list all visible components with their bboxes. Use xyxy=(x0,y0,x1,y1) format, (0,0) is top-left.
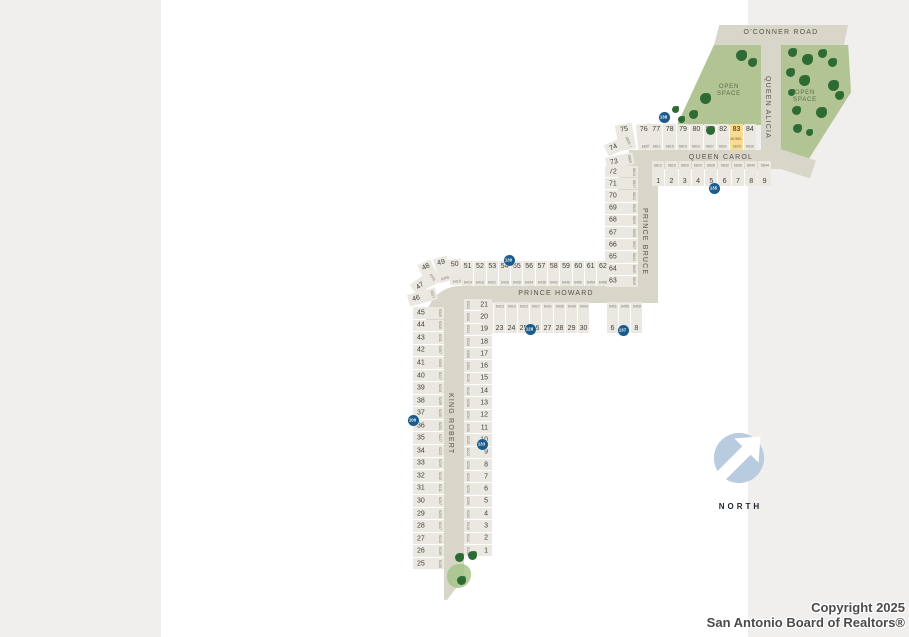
lot-address: 6435 xyxy=(556,305,564,307)
lot-address: 6227 xyxy=(439,433,441,443)
tree-icon xyxy=(828,80,839,91)
lot-address: 6821 xyxy=(633,191,635,201)
road-queen-alicia-label: QUEEN ALICIA xyxy=(764,58,771,158)
lot-8: 68408 xyxy=(745,161,757,186)
lot-29: 643929 xyxy=(566,302,577,333)
lot-address: 6306 xyxy=(467,349,469,359)
lot-number: 77 xyxy=(652,126,660,133)
lot-82: 826831 xyxy=(717,124,729,150)
lot-address: 6239 xyxy=(439,396,441,406)
lot-57: 576438 xyxy=(536,261,547,286)
lot-address: 6819 xyxy=(679,145,687,147)
lot-83: 83MODEL6835 xyxy=(730,124,742,150)
lot-number: 14 xyxy=(480,387,488,394)
lot-number: 53 xyxy=(488,263,496,270)
lot-address: 6214 xyxy=(467,472,469,482)
lot-address: 6815 xyxy=(666,145,674,147)
lot-number: 29 xyxy=(568,325,576,332)
lot-number: 70 xyxy=(609,192,617,199)
lot-number: 27 xyxy=(544,325,552,332)
lot-address: 6230 xyxy=(467,423,469,433)
lot-number: 64 xyxy=(609,266,617,273)
lot-address: 6135 xyxy=(439,559,441,569)
lot-address: 6414 xyxy=(464,281,472,283)
lot-marker-badge: 138 xyxy=(659,112,670,123)
lot-address: 6824 xyxy=(694,164,702,166)
lot-address: 6823 xyxy=(692,145,700,147)
lot-address: 6841 xyxy=(633,252,635,262)
tree-icon xyxy=(788,89,795,96)
lot-76: 766807 xyxy=(636,123,653,150)
lot-number: 8 xyxy=(749,178,753,185)
lot-6: 68326 xyxy=(718,161,730,186)
lot-number: 82 xyxy=(719,126,727,133)
north-arrow-icon xyxy=(706,425,772,491)
lot-58: 586442 xyxy=(548,261,559,286)
lot-79: 796819 xyxy=(677,124,689,150)
lot-number: 2 xyxy=(669,178,673,185)
lot-address: 6231 xyxy=(439,421,441,431)
copyright-line1: Copyright 2025 xyxy=(605,600,905,615)
lot-number: 6 xyxy=(723,178,727,185)
lot-63: 636849 xyxy=(605,276,638,287)
lot-address: 6147 xyxy=(439,521,441,531)
lot-number: 8 xyxy=(635,325,639,332)
lot-address: 6315 xyxy=(439,320,441,330)
road-oconner-label: O'CONNER ROAD xyxy=(721,29,841,36)
lot-address: 6828 xyxy=(707,164,715,166)
lot-number: 46 xyxy=(411,294,420,303)
lot-number: 3 xyxy=(484,522,488,529)
lot-number: 52 xyxy=(476,263,484,270)
lot-address: 6459 xyxy=(633,305,641,307)
tree-icon xyxy=(818,49,827,58)
lot-address: 6835 xyxy=(733,145,741,147)
lot-1: 68121 xyxy=(652,161,664,186)
lot-number: 65 xyxy=(609,253,617,260)
lot-40: 406247 xyxy=(413,370,444,382)
lot-address: 6202 xyxy=(467,509,469,519)
lot-number: 61 xyxy=(587,263,595,270)
lot-number: 69 xyxy=(609,205,617,212)
lot-marker-badge: 133 xyxy=(477,439,488,450)
lot-61: 616454 xyxy=(585,261,596,286)
lot-29: 296203 xyxy=(413,508,444,520)
lot-number: 59 xyxy=(562,263,570,270)
lot-address: 6311 xyxy=(439,333,441,343)
lot-address: 6322 xyxy=(467,300,469,310)
lot-address: 6455 xyxy=(621,305,629,307)
lot-marker-badge: 135 xyxy=(709,183,720,194)
road-queen-carol-label: QUEEN CAROL xyxy=(666,154,776,161)
lot-address: 6247 xyxy=(439,371,441,381)
lot-27: 276143 xyxy=(413,533,444,545)
lot-address: 6246 xyxy=(467,373,469,383)
lot-marker-badge: 130 xyxy=(504,255,515,266)
lot-number: 40 xyxy=(417,372,425,379)
lot-11: 116230 xyxy=(464,422,492,433)
lot-59: 596446 xyxy=(560,261,571,286)
lot-address: 6827 xyxy=(706,145,714,147)
lot-address: 6139 xyxy=(439,546,441,556)
lot-5: 56206 xyxy=(464,496,492,507)
lot-80: 806823 xyxy=(690,124,702,150)
lot-number: 30 xyxy=(417,497,425,504)
lot-marker-badge: 100 xyxy=(408,415,419,426)
lot-3: 68203 xyxy=(679,161,691,186)
lot-number: 26 xyxy=(417,548,425,555)
open-space-west-label: OPEN SPACE xyxy=(713,84,745,98)
lot-33: 336219 xyxy=(413,458,444,470)
lot-number: 20 xyxy=(480,313,488,320)
lot-16: 166302 xyxy=(464,360,492,371)
lot-address: 6426 xyxy=(501,281,509,283)
tree-icon xyxy=(736,50,747,61)
lot-number: 16 xyxy=(480,363,488,370)
lot-address: 6849 xyxy=(633,276,635,286)
lot-14: 146242 xyxy=(464,385,492,396)
lot-number: 42 xyxy=(417,347,425,354)
tree-icon xyxy=(792,106,801,115)
lot-number: 38 xyxy=(417,397,425,404)
lot-address: 6419 xyxy=(508,305,516,307)
copyright-notice: Copyright 2025 San Antonio Board of Real… xyxy=(605,600,905,630)
lot-19: 196314 xyxy=(464,324,492,335)
lot-number: 37 xyxy=(417,410,425,417)
lot-address: 6423 xyxy=(520,305,528,307)
lot-number: 32 xyxy=(417,472,425,479)
lot-41: 416303 xyxy=(413,357,444,369)
lot-address: 6211 xyxy=(439,483,441,493)
lot-address: 6833 xyxy=(633,228,635,238)
lot-number: 44 xyxy=(417,322,425,329)
tree-icon xyxy=(802,54,813,65)
lot-71: 716817 xyxy=(605,178,638,189)
lot-39: 396243 xyxy=(413,382,444,394)
lot-23: 641523 xyxy=(494,302,505,333)
lot-address: 6807 xyxy=(641,145,649,148)
lot-address: 6812 xyxy=(654,164,662,166)
lot-address: 6310 xyxy=(467,337,469,347)
lot-number: 7 xyxy=(484,473,488,480)
lot-38: 386239 xyxy=(413,395,444,407)
lot-13: 136238 xyxy=(464,397,492,408)
lot-address: 6142 xyxy=(467,533,469,543)
lot-30: 306207 xyxy=(413,495,444,507)
lot-66: 666837 xyxy=(605,239,638,250)
lot-address: 6302 xyxy=(467,361,469,371)
lot-address: 6450 xyxy=(574,281,582,283)
tree-icon xyxy=(672,106,679,113)
lot-number: 83 xyxy=(733,126,741,133)
lot-number: 35 xyxy=(417,435,425,442)
lot-address: 6434 xyxy=(525,281,533,283)
lot-number: 1 xyxy=(656,178,660,185)
lot-number: 8 xyxy=(484,461,488,468)
lot-number: 34 xyxy=(417,447,425,454)
lot-26: 266139 xyxy=(413,545,444,557)
lot-number: 12 xyxy=(480,412,488,419)
lot-number: 5 xyxy=(484,498,488,505)
lot-address: 6839 xyxy=(746,145,754,147)
lot-address: 6307 xyxy=(439,345,441,355)
lot-address: 6442 xyxy=(550,281,558,283)
lot-69: 696825 xyxy=(605,203,638,214)
lot-address: 6805 xyxy=(625,136,631,146)
lot-number: 28 xyxy=(556,325,564,332)
lot-number: 55 xyxy=(513,263,521,270)
lot-group-qc_north: 77681178681579681980682381682782683183MO… xyxy=(650,124,756,150)
lot-28: 286147 xyxy=(413,520,444,532)
lot-65: 656841 xyxy=(605,251,638,262)
lot-address: 6331 xyxy=(429,272,437,281)
lot-marker-badge: 128 xyxy=(525,324,536,335)
left-gutter xyxy=(0,0,161,637)
lot-number: 39 xyxy=(417,385,425,392)
lot-address: 6243 xyxy=(439,383,441,393)
lot-number: 60 xyxy=(574,263,582,270)
lot-number: 9 xyxy=(763,178,767,185)
tree-icon xyxy=(689,110,698,119)
lot-group-ph_north: 5164145264185364225464265564305664345764… xyxy=(462,261,609,286)
lot-45: 456319 xyxy=(413,307,444,319)
lot-address: 6218 xyxy=(467,460,469,470)
lot-address: 6206 xyxy=(467,496,469,506)
lot-address: 6431 xyxy=(544,305,552,307)
lot-30: 644330 xyxy=(578,302,589,333)
lot-number: 71 xyxy=(609,180,617,187)
lot-24: 641924 xyxy=(506,302,517,333)
lot-number: 76 xyxy=(640,126,648,134)
lot-number: 41 xyxy=(417,359,425,366)
lot-number: 75 xyxy=(620,125,629,133)
lot-address: 6207 xyxy=(439,496,441,506)
lot-number: 74 xyxy=(608,143,618,153)
plat-map: OPEN SPACE OPEN SPACE O'CONNER ROAD QUEE… xyxy=(161,0,748,637)
lot-address: 6820 xyxy=(681,164,689,166)
lot-address: 6410 xyxy=(452,280,460,283)
lot-address: 6446 xyxy=(562,281,570,283)
lot-number: 28 xyxy=(417,523,425,530)
lot-8: 86218 xyxy=(464,459,492,470)
tree-icon xyxy=(748,58,757,67)
lot-28: 643528 xyxy=(554,302,565,333)
road-prince-howard-label: PRINCE HOWARD xyxy=(491,290,621,297)
tree-icon xyxy=(786,68,795,77)
lot-78: 786815 xyxy=(663,124,675,150)
lot-3: 36146 xyxy=(464,520,492,531)
lot-number: 58 xyxy=(550,263,558,270)
tree-icon xyxy=(828,58,837,67)
tree-icon xyxy=(788,48,797,57)
lot-address: 6825 xyxy=(633,203,635,213)
lot-17: 176306 xyxy=(464,348,492,359)
lot-number: 17 xyxy=(480,350,488,357)
lot-number: 13 xyxy=(480,400,488,407)
lot-number: 57 xyxy=(538,263,546,270)
lot-address: 6837 xyxy=(633,240,635,250)
lot-15: 156246 xyxy=(464,373,492,384)
lot-number: 4 xyxy=(696,178,700,185)
lot-number: 24 xyxy=(508,325,516,332)
lot-address: 6210 xyxy=(467,484,469,494)
lot-number: 30 xyxy=(580,325,588,332)
tree-icon xyxy=(468,551,477,560)
lot-address: 6422 xyxy=(488,281,496,283)
lot-address: 6427 xyxy=(532,305,540,307)
lot-address: 6813 xyxy=(633,167,635,177)
lot-9: 68449 xyxy=(758,161,770,186)
lot-group-kr_east: 2163222063181963141863101763061663021562… xyxy=(464,299,492,556)
lot-42: 426307 xyxy=(413,345,444,357)
lot-7: 76214 xyxy=(464,471,492,482)
lot-number: 49 xyxy=(437,258,446,267)
lot-21: 216322 xyxy=(464,299,492,310)
lot-20: 206318 xyxy=(464,311,492,322)
lot-number: 62 xyxy=(599,263,607,270)
lot-number: 78 xyxy=(666,126,674,133)
tree-icon xyxy=(806,129,813,136)
lot-number: 63 xyxy=(609,278,617,285)
lot-address: 6454 xyxy=(587,281,595,283)
lot-53: 536422 xyxy=(487,261,498,286)
lot-address: 6845 xyxy=(633,264,635,274)
lot-address: 6811 xyxy=(652,145,660,147)
lot-number: 18 xyxy=(480,338,488,345)
lot-address: 6430 xyxy=(513,281,521,283)
lot-84: 846839 xyxy=(744,124,756,150)
lot-address: 6443 xyxy=(580,305,588,307)
lot-44: 446315 xyxy=(413,320,444,332)
model-tag: MODEL xyxy=(731,138,742,140)
lot-4: 46202 xyxy=(464,508,492,519)
lot-number: 68 xyxy=(609,217,617,224)
lot-address: 6203 xyxy=(439,509,441,519)
lot-number: 29 xyxy=(417,510,425,517)
tree-icon xyxy=(700,93,711,104)
lot-address: 6418 xyxy=(476,281,484,283)
lot-number: 21 xyxy=(480,301,488,308)
lot-number: 73 xyxy=(609,158,618,166)
tree-icon xyxy=(799,75,810,86)
lot-7: 68367 xyxy=(732,161,744,186)
lot-34: 346223 xyxy=(413,445,444,457)
lot-address: 6219 xyxy=(439,458,441,468)
lot-address: 6406 xyxy=(441,276,449,280)
lot-number: 80 xyxy=(692,126,700,133)
lot-25: 256135 xyxy=(413,558,444,570)
lot-number: 6 xyxy=(611,325,615,332)
lot-35: 356227 xyxy=(413,432,444,444)
lot-number: 43 xyxy=(417,334,425,341)
lot-group-kr_west: 4563194463154363114263074163034062473962… xyxy=(413,307,444,569)
lot-number: 2 xyxy=(484,535,488,542)
road-king-robert-label: KING ROBERT xyxy=(447,380,454,468)
tree-icon xyxy=(835,91,844,100)
lot-31: 316211 xyxy=(413,483,444,495)
lot-50: 506410 xyxy=(448,258,464,285)
tree-icon xyxy=(793,124,802,133)
lot-address: 6327 xyxy=(430,289,435,299)
lot-address: 6215 xyxy=(439,471,441,481)
lot-number: 66 xyxy=(609,241,617,248)
lot-address: 6223 xyxy=(439,446,441,456)
lot-address: 6226 xyxy=(467,435,469,445)
tree-icon xyxy=(455,553,464,562)
lot-number: 3 xyxy=(683,178,687,185)
lot-6: 64516 xyxy=(607,302,618,333)
lot-12: 126234 xyxy=(464,410,492,421)
lot-67: 676833 xyxy=(605,227,638,238)
lot-address: 6458 xyxy=(599,281,607,283)
lot-address: 6816 xyxy=(667,164,675,166)
lot-4: 68244 xyxy=(692,161,704,186)
lot-address: 6235 xyxy=(439,408,441,418)
lot-address: 6829 xyxy=(633,215,635,225)
lot-address: 6836 xyxy=(734,164,742,166)
tree-icon xyxy=(457,576,466,585)
lot-68: 686829 xyxy=(605,215,638,226)
lot-64: 646845 xyxy=(605,264,638,275)
lot-number: 15 xyxy=(480,375,488,382)
north-indicator: NORTH xyxy=(704,425,774,511)
lot-address: 6415 xyxy=(496,305,504,307)
lot-address: 6242 xyxy=(467,386,469,396)
lot-number: 11 xyxy=(481,424,488,431)
lot-group-pb_west: 7268137168177068216968256868296768336668… xyxy=(605,166,638,287)
lot-number: 23 xyxy=(496,325,504,332)
lot-number: 25 xyxy=(417,560,425,567)
lot-address: 6817 xyxy=(633,179,635,189)
copyright-line2: San Antonio Board of Realtors® xyxy=(605,615,905,630)
lot-6: 66210 xyxy=(464,483,492,494)
lot-number: 56 xyxy=(525,263,533,270)
lot-address: 6438 xyxy=(537,281,545,283)
lot-2: 68162 xyxy=(665,161,677,186)
lot-address: 6314 xyxy=(467,324,469,334)
lot-address: 6222 xyxy=(467,447,469,457)
lot-number: 45 xyxy=(417,309,425,316)
lot-address: 6238 xyxy=(467,398,469,408)
lot-2: 26142 xyxy=(464,533,492,544)
lot-address: 6318 xyxy=(467,312,469,322)
lot-address: 6146 xyxy=(467,521,469,531)
lot-number: 67 xyxy=(609,229,617,236)
lot-51: 516414 xyxy=(462,261,473,286)
lot-address: 6844 xyxy=(761,164,769,166)
lot-address: 6143 xyxy=(439,534,441,544)
lot-number: 7 xyxy=(736,178,740,185)
lot-32: 326215 xyxy=(413,470,444,482)
lot-number: 50 xyxy=(450,261,458,269)
lot-address: 6234 xyxy=(467,410,469,420)
lot-8: 64598 xyxy=(631,302,642,333)
lot-number: 1 xyxy=(484,547,488,554)
tree-icon xyxy=(816,107,827,118)
lot-number: 33 xyxy=(417,460,425,467)
lot-group-ph_south: 6411226415236419246423256427266431276435… xyxy=(482,302,589,333)
lot-70: 706821 xyxy=(605,190,638,201)
north-label: NORTH xyxy=(704,502,774,511)
lot-52: 526418 xyxy=(474,261,485,286)
lot-group-qc_south: 6812168162682036824468285683266836768408… xyxy=(652,161,771,186)
lot-62: 626458 xyxy=(597,261,608,286)
lot-43: 436311 xyxy=(413,332,444,344)
lot-number: 27 xyxy=(417,535,425,542)
lot-address: 6831 xyxy=(719,145,727,147)
lot-18: 186310 xyxy=(464,336,492,347)
tree-icon xyxy=(678,116,685,123)
